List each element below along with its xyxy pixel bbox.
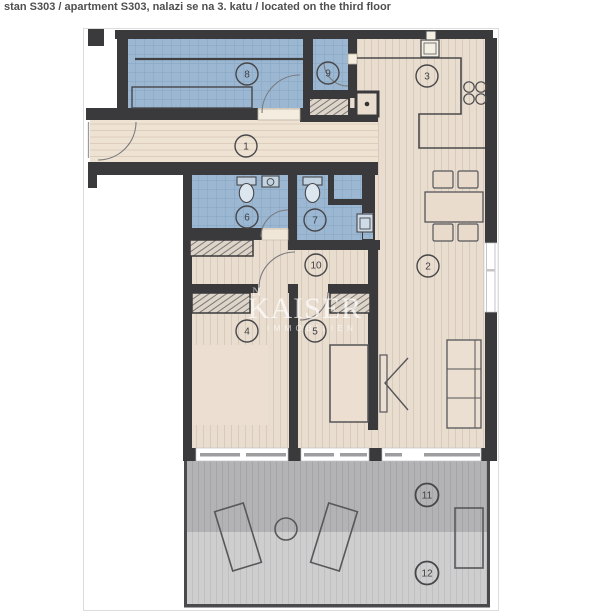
terrace-edge-right bbox=[487, 461, 490, 607]
terrace-edge-bottom bbox=[184, 604, 490, 608]
terrace-edge-left bbox=[184, 461, 187, 607]
watermark-brand: KAISER bbox=[248, 292, 362, 325]
bed-room4 bbox=[192, 345, 268, 425]
svg-text:5: 5 bbox=[312, 327, 318, 338]
svg-text:11: 11 bbox=[422, 491, 433, 502]
terrace bbox=[184, 461, 490, 608]
door-sill-room8 bbox=[258, 109, 300, 120]
toilet-bowl-6 bbox=[239, 184, 253, 203]
wardrobe-hall10 bbox=[190, 240, 253, 256]
svg-text:6: 6 bbox=[244, 213, 250, 224]
installation-shaft-hatched bbox=[309, 98, 349, 116]
sofa bbox=[447, 340, 481, 428]
kitchen-tap bbox=[426, 31, 436, 40]
svg-text:10: 10 bbox=[310, 261, 322, 272]
hallway-1-floor bbox=[90, 118, 378, 164]
door-sill-room6 bbox=[262, 229, 288, 240]
window-east bbox=[484, 243, 498, 312]
bed-room5 bbox=[330, 345, 368, 422]
shaft-dot bbox=[365, 102, 370, 107]
svg-text:4: 4 bbox=[244, 327, 250, 338]
svg-text:7: 7 bbox=[312, 216, 318, 227]
svg-text:12: 12 bbox=[421, 569, 433, 580]
floor-plan: N KAISER IMMOBILIEN 1 2 3 4 5 6 bbox=[0, 0, 607, 615]
terrace-glazing bbox=[196, 448, 481, 461]
dining-table bbox=[425, 192, 483, 222]
terrace-covered-zone bbox=[187, 461, 487, 532]
door-sill-room9 bbox=[348, 54, 357, 64]
wardrobe-room4 bbox=[192, 293, 250, 313]
svg-text:1: 1 bbox=[243, 142, 249, 153]
room-8-tiles bbox=[128, 38, 303, 108]
toilet-bowl-7 bbox=[305, 184, 319, 203]
svg-text:9: 9 bbox=[325, 69, 331, 80]
svg-text:2: 2 bbox=[425, 262, 431, 273]
svg-text:3: 3 bbox=[424, 72, 430, 83]
svg-text:8: 8 bbox=[244, 70, 250, 81]
room-9-tiles bbox=[313, 38, 348, 90]
